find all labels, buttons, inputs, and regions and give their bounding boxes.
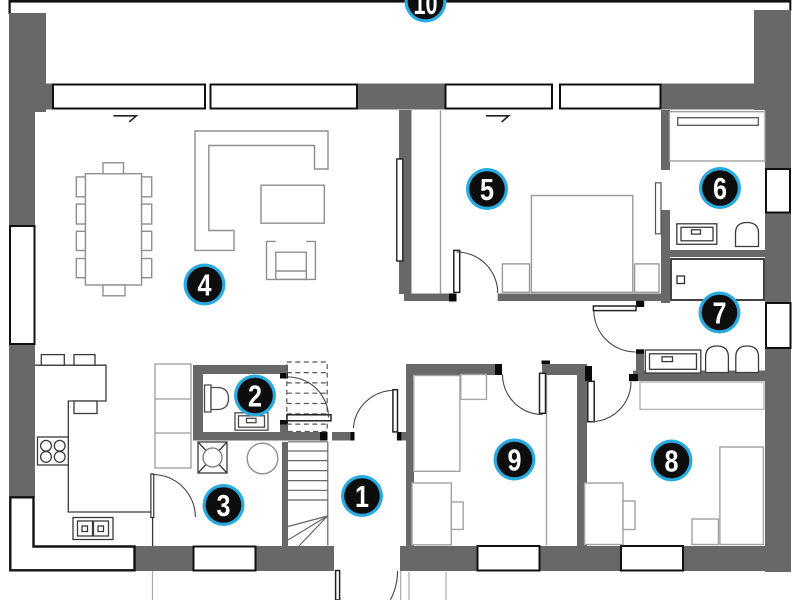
svg-text:8: 8	[665, 444, 679, 479]
svg-text:3: 3	[217, 488, 231, 523]
svg-text:1: 1	[355, 479, 369, 514]
svg-text:4: 4	[198, 268, 213, 303]
svg-text:6: 6	[713, 171, 727, 206]
svg-text:7: 7	[713, 296, 727, 331]
svg-text:2: 2	[248, 379, 262, 414]
svg-text:9: 9	[508, 443, 522, 478]
svg-text:10: 10	[414, 0, 438, 21]
svg-text:5: 5	[480, 172, 494, 207]
